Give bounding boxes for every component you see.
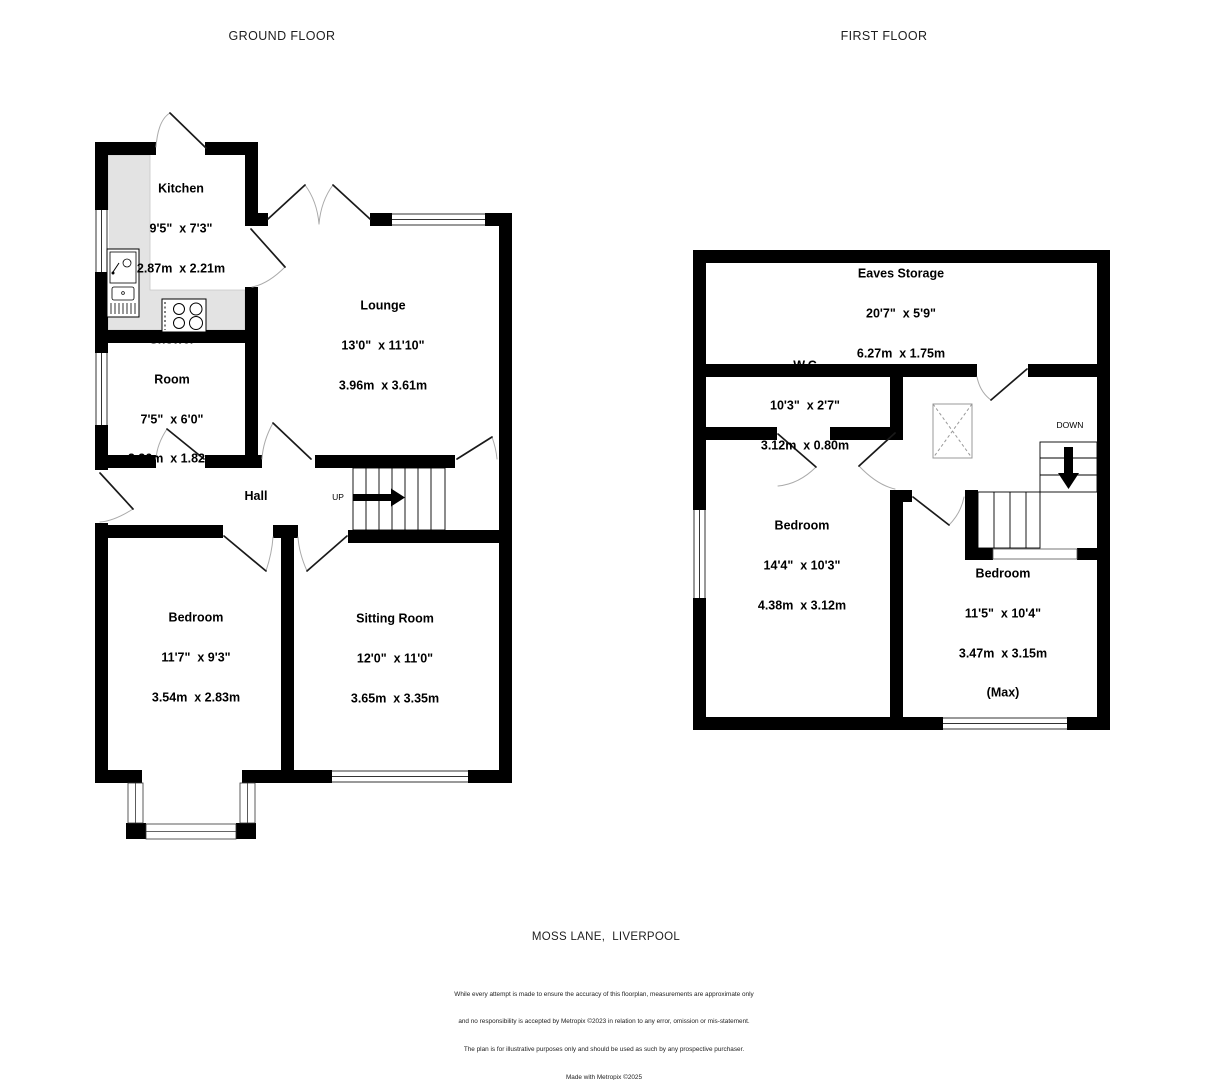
room-dims-metric: 2.87m x 2.21m xyxy=(137,262,225,275)
window xyxy=(332,769,468,784)
room-dims-imperial: 20'7" x 5'9" xyxy=(857,307,945,320)
room-dims-imperial: 14'4" x 10'3" xyxy=(758,559,846,572)
room-name: Room xyxy=(128,374,216,387)
room-name: Bedroom xyxy=(959,568,1047,581)
room-dims-imperial: 7'5" x 6'0" xyxy=(128,413,216,426)
stairs-down-label: DOWN xyxy=(1057,420,1084,430)
disclaimer-line: Made with Metropix ©2025 xyxy=(454,1073,753,1080)
room-name: Shower xyxy=(128,334,216,347)
room-dims-imperial: 9'5" x 7'3" xyxy=(137,222,225,235)
room-dims-imperial: 10'3" x 2'7" xyxy=(761,399,849,412)
room-label-bedroom-2: Bedroom 11'5" x 10'4" 3.47m x 3.15m (Max… xyxy=(959,542,1047,727)
window xyxy=(392,212,485,227)
disclaimer-line: and no responsibility is accepted by Met… xyxy=(454,1017,753,1026)
door-swing xyxy=(457,437,497,459)
room-label-wc: W.C 10'3" x 2'7" 3.12m x 0.80m xyxy=(761,333,849,478)
room-dims-metric: 3.54m x 2.83m xyxy=(152,691,240,704)
floorplan-canvas: GROUND FLOOR FIRST FLOOR Kitchen 9'5" x … xyxy=(0,0,1205,1080)
disclaimer-text: While every attempt is made to ensure th… xyxy=(454,971,753,1080)
loft-hatch-icon xyxy=(933,404,972,458)
room-dims-metric: 2.26m x 1.82m xyxy=(128,453,216,466)
room-label-eaves-storage: Eaves Storage 20'7" x 5'9" 6.27m x 1.75m xyxy=(857,241,945,386)
room-dims-metric: 3.65m x 3.35m xyxy=(351,692,439,705)
room-label-kitchen: Kitchen 9'5" x 7'3" 2.87m x 2.21m xyxy=(137,156,225,301)
double-door-swing xyxy=(268,185,370,224)
door-swing xyxy=(262,423,311,459)
room-label-sitting-room: Sitting Room 12'0" x 11'0" 3.65m x 3.35m xyxy=(351,586,439,731)
front-door-opening xyxy=(94,470,109,523)
room-label-lounge: Lounge 13'0" x 11'10" 3.96m x 3.61m xyxy=(339,273,427,418)
room-name: Kitchen xyxy=(137,183,225,196)
room-dims-imperial: 11'5" x 10'4" xyxy=(959,608,1047,621)
property-address: MOSS LANE, LIVERPOOL xyxy=(532,931,680,943)
door-swing xyxy=(859,433,895,489)
room-dims-metric: 6.27m x 1.75m xyxy=(857,347,945,360)
ground-floor-title: GROUND FLOOR xyxy=(229,29,336,43)
room-dims-note: (Max) xyxy=(959,687,1047,700)
staircase-down xyxy=(978,442,1097,548)
window xyxy=(692,510,707,598)
first-floor-title: FIRST FLOOR xyxy=(841,29,928,43)
room-name: Lounge xyxy=(339,300,427,313)
room-label-shower-room: Shower Room 7'5" x 6'0" 2.26m x 1.82m xyxy=(128,308,216,493)
room-dims-metric: 4.38m x 3.12m xyxy=(758,599,846,612)
kitchen-door-opening xyxy=(156,141,205,156)
room-name: W.C xyxy=(761,360,849,373)
door-swing xyxy=(298,536,347,571)
room-label-bedroom-ground: Bedroom 11'7" x 9'3" 3.54m x 2.83m xyxy=(152,585,240,730)
bay-window xyxy=(128,783,255,839)
door-swing xyxy=(913,497,964,525)
room-name: Bedroom xyxy=(758,520,846,533)
door-swing xyxy=(251,229,285,287)
staircase-up xyxy=(353,468,445,530)
room-name: Hall xyxy=(245,490,268,503)
room-name: Eaves Storage xyxy=(857,268,945,281)
stairs-up-label: UP xyxy=(332,492,344,502)
room-label-bedroom-1: Bedroom 14'4" x 10'3" 4.38m x 3.12m xyxy=(758,493,846,638)
room-name: Sitting Room xyxy=(351,613,439,626)
room-dims-metric: 3.47m x 3.15m xyxy=(959,647,1047,660)
window xyxy=(94,353,109,425)
room-dims-imperial: 12'0" x 11'0" xyxy=(351,652,439,665)
door-swing xyxy=(224,536,273,571)
disclaimer-line: The plan is for illustrative purposes on… xyxy=(454,1045,753,1054)
disclaimer-line: While every attempt is made to ensure th… xyxy=(454,990,753,999)
door-swing xyxy=(977,369,1027,400)
room-dims-metric: 3.12m x 0.80m xyxy=(761,439,849,452)
room-dims-imperial: 11'7" x 9'3" xyxy=(152,651,240,664)
room-dims-metric: 3.96m x 3.61m xyxy=(339,379,427,392)
room-name: Bedroom xyxy=(152,612,240,625)
room-label-hall: Hall xyxy=(245,464,268,530)
room-dims-imperial: 13'0" x 11'10" xyxy=(339,339,427,352)
